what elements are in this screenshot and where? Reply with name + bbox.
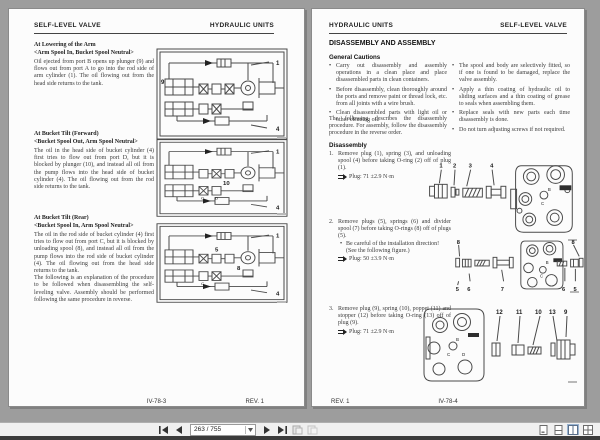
continuous-view-button[interactable] — [552, 424, 564, 435]
callout-5: 5 — [215, 248, 218, 254]
port-b-label: B — [456, 337, 459, 342]
callout-1: 1 — [276, 61, 280, 67]
cautions-heading: General Cautions — [329, 54, 380, 61]
callout-1: 1 — [276, 150, 279, 155]
callout-9: 9 — [564, 310, 568, 316]
port-d-label: D — [462, 352, 466, 357]
torque-wrench-icon — [338, 174, 347, 180]
callout-4: 4 — [490, 164, 494, 170]
single-page-view-button[interactable] — [537, 424, 549, 435]
section-bucket-tilt-forward: At Bucket Tilt (Forward) <Bucket Spool O… — [34, 131, 154, 191]
callout-5-left: 5 — [456, 287, 460, 293]
port-c-label: C — [447, 352, 451, 357]
section-body: Oil ejected from port B opens up plunger… — [34, 59, 154, 88]
section-body: The oil in the head side of bucket cylin… — [34, 148, 154, 191]
previous-view-icon — [292, 425, 303, 435]
pdf-viewer: { "left": { "header_left": "SELF-LEVEL V… — [0, 0, 600, 440]
hydraulic-circuit-diagram-2: C D 10 1 4 — [155, 138, 289, 218]
section-body-2: The following is an explanation of the p… — [34, 275, 154, 304]
exploded-view-figure-2: 8 5 6 7 8 6 5 B C — [450, 235, 584, 295]
caution-item: The spool and body are selectively fitte… — [452, 63, 570, 85]
callout-4: 4 — [276, 206, 280, 211]
callout-12: 12 — [496, 310, 503, 316]
next-page-icon — [264, 426, 271, 434]
page-header-right: HYDRAULIC UNITS — [210, 22, 274, 29]
torque-value: Plug: 50 ±3.9 N·m — [349, 256, 394, 262]
callout-4: 4 — [276, 292, 280, 298]
next-view-icon — [307, 425, 318, 435]
cautions-list-right: The spool and body are selectively fitte… — [452, 63, 570, 136]
section-title: At Bucket Tilt (Forward) — [34, 131, 154, 139]
torque-spec: Plug: 50 ±3.9 N·m — [338, 256, 451, 262]
port-c-label: C — [201, 196, 204, 201]
port-c-label: C — [540, 273, 543, 278]
section-bucket-tilt-rear: At Bucket Tilt (Rear) <Bucket Spool In, … — [34, 215, 154, 304]
page-number-combobox[interactable] — [190, 424, 256, 436]
callout-11: 11 — [516, 310, 523, 316]
figure-code-mark — [570, 291, 579, 293]
port-b-label: B — [546, 260, 549, 265]
facing-pages-icon — [568, 425, 578, 435]
figure-code-mark — [277, 301, 286, 303]
page-navigation-group — [157, 423, 319, 436]
section-subtitle: <Arm Spool In, Bucket Spool Neutral> — [34, 50, 154, 58]
continuous-facing-icon — [583, 425, 593, 435]
last-page-button[interactable] — [276, 424, 289, 435]
callout-8: 8 — [237, 266, 240, 272]
header-rule — [329, 33, 567, 34]
callout-4: 4 — [276, 127, 280, 133]
callout-3: 3 — [469, 164, 473, 170]
callout-6-left: 6 — [467, 287, 470, 293]
window-bottom-edge — [0, 436, 600, 440]
callout-1: 1 — [439, 164, 443, 170]
callout-10: 10 — [223, 181, 230, 186]
step-note: Be careful of the installation direction… — [338, 241, 451, 255]
intro-paragraph: The following describes the disassembly … — [329, 116, 447, 138]
page-header-left: HYDRAULIC UNITS — [329, 22, 393, 29]
step-number: 3. — [329, 306, 338, 328]
previous-page-icon — [175, 426, 182, 434]
caution-item: Before disassembly, clean thoroughly aro… — [329, 87, 447, 109]
step-text: Remove plugs (5), springs (6) and divide… — [338, 219, 451, 241]
hydraulic-circuit-diagram-3: C 5 8 1 4 — [155, 222, 289, 304]
viewer-status-bar — [0, 422, 600, 436]
callout-13: 13 — [549, 310, 556, 316]
page-header-left: SELF-LEVEL VALVE — [34, 22, 101, 29]
callout-6-right: 6 — [562, 287, 565, 293]
callout-1: 1 — [276, 234, 279, 240]
section-subtitle: <Bucket Spool Out, Arm Spool Neutral> — [34, 139, 154, 147]
next-view-button[interactable] — [306, 424, 319, 435]
manual-page-left: SELF-LEVEL VALVE HYDRAULIC UNITS At Lowe… — [8, 8, 305, 407]
callout-8-right: 8 — [572, 240, 576, 246]
step-number: 1. — [329, 151, 338, 173]
previous-page-button[interactable] — [172, 424, 185, 435]
exploded-view-figure-3: 12 11 10 13 9 B C D — [420, 301, 580, 387]
continuous-facing-view-button[interactable] — [582, 424, 594, 435]
figure-code-mark — [277, 213, 286, 215]
section-arm-lowering: At Lowering of the Arm <Arm Spool In, Bu… — [34, 42, 154, 88]
chevron-down-icon[interactable] — [246, 428, 255, 432]
previous-view-button[interactable] — [291, 424, 304, 435]
page-layout-group — [537, 423, 594, 436]
callout-2: 2 — [453, 164, 457, 170]
page-number-footer: IV-78-4 — [312, 399, 584, 405]
callout-9: 9 — [161, 80, 165, 86]
page-header-right: SELF-LEVEL VALVE — [500, 22, 567, 29]
first-page-icon — [159, 426, 168, 434]
section-title: At Lowering of the Arm — [34, 42, 154, 50]
page-number-input[interactable] — [191, 426, 245, 434]
port-c-label: C — [541, 201, 544, 206]
facing-view-button[interactable] — [567, 424, 579, 435]
single-page-icon — [539, 425, 548, 435]
section-subtitle: <Bucket Spool In, Arm Spool Neutral> — [34, 223, 154, 231]
caution-item: Apply a thin coating of hydraulic oil to… — [452, 87, 570, 109]
callout-10: 10 — [535, 310, 542, 316]
caution-item: Carry out disassembly and assembly opera… — [329, 63, 447, 85]
next-page-button[interactable] — [261, 424, 274, 435]
hydraulic-circuit-diagram-1: 9 1 4 — [155, 47, 289, 141]
torque-wrench-icon — [338, 329, 347, 335]
last-page-icon — [278, 426, 287, 434]
caution-item: Replace seals with new parts each time d… — [452, 110, 570, 124]
callout-8-left: 8 — [457, 240, 461, 246]
torque-value: Plug: 71 ±2.9 N·m — [349, 329, 394, 335]
revision-footer: REV. 1 — [246, 399, 264, 405]
first-page-button[interactable] — [157, 424, 170, 435]
page-title: DISASSEMBLY AND ASSEMBLY — [329, 40, 436, 47]
manual-page-right: HYDRAULIC UNITS SELF-LEVEL VALVE DISASSE… — [311, 8, 585, 407]
torque-value: Plug: 71 ±2.9 N·m — [349, 174, 394, 180]
port-d-label: D — [215, 196, 218, 201]
step-number: 2. — [329, 219, 338, 241]
port-c-label: C — [201, 281, 204, 286]
section-title: At Bucket Tilt (Rear) — [34, 215, 154, 223]
figure-code-mark — [568, 381, 577, 383]
continuous-page-icon — [554, 425, 563, 435]
port-b-label: B — [548, 187, 551, 192]
disassembly-step-2: 2. Remove plugs (5), springs (6) and div… — [329, 219, 451, 262]
header-rule — [34, 33, 274, 34]
disassembly-heading: Disassembly — [329, 142, 367, 149]
caution-item: Do not turn adjusting screws if not requ… — [452, 127, 570, 134]
callout-7: 7 — [501, 287, 504, 293]
section-body: The oil in the rod side of bucket cylind… — [34, 232, 154, 275]
torque-wrench-icon — [338, 256, 347, 262]
